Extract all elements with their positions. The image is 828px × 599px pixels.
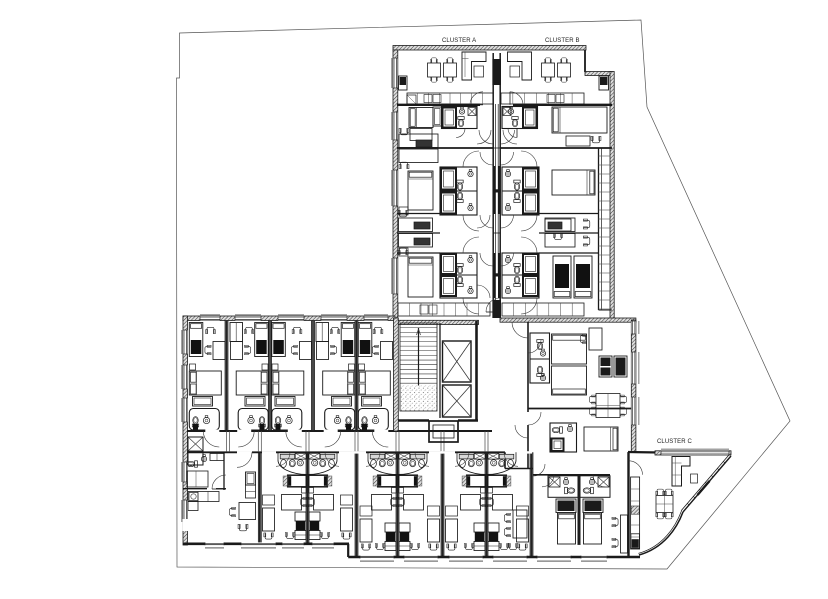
svg-text:CLUSTER C: CLUSTER C: [657, 439, 692, 445]
svg-text:CLUSTER A: CLUSTER A: [442, 38, 476, 44]
svg-text:CLUSTER B: CLUSTER B: [545, 38, 580, 44]
